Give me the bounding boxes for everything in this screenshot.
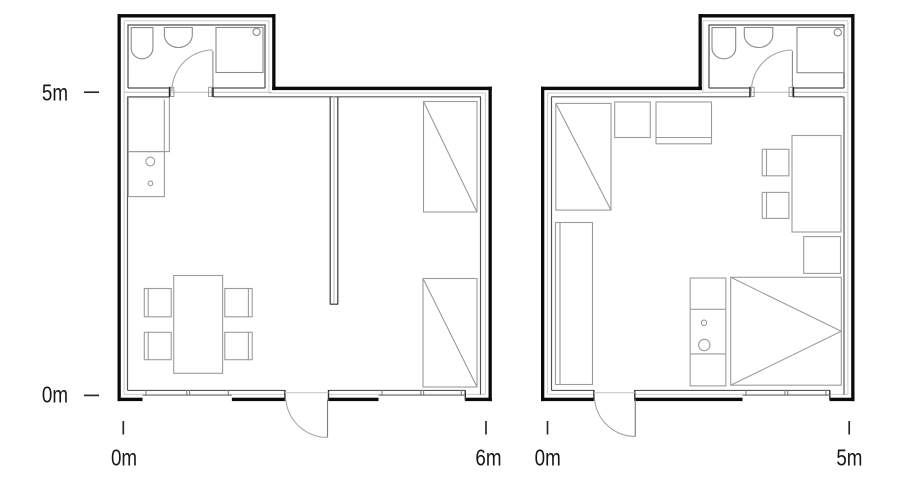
svg-text:5m: 5m <box>42 79 68 106</box>
svg-text:6m: 6m <box>475 444 501 471</box>
svg-text:0m: 0m <box>535 444 561 471</box>
svg-text:0m: 0m <box>111 444 137 471</box>
svg-text:0m: 0m <box>42 381 68 408</box>
svg-text:5m: 5m <box>836 444 862 471</box>
